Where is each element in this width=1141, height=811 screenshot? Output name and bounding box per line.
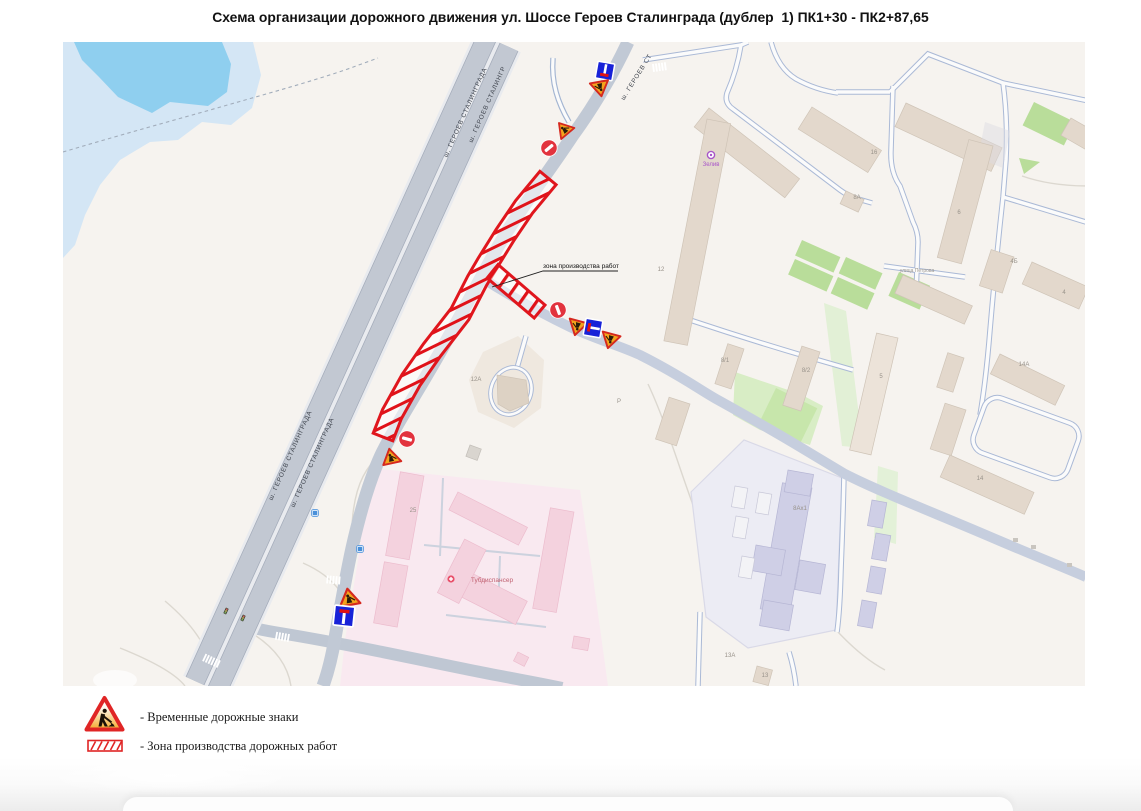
svg-text:улица Петрова: улица Петрова <box>900 268 935 274</box>
svg-text:8А: 8А <box>853 195 860 201</box>
svg-text:16: 16 <box>871 150 878 156</box>
svg-text:Р: Р <box>617 399 621 405</box>
svg-text:Тубдиспансер: Тубдиспансер <box>471 576 514 584</box>
svg-text:Зелив: Зелив <box>703 162 720 168</box>
svg-text:- Временные дорожные знаки: - Временные дорожные знаки <box>140 710 299 724</box>
svg-text:13А: 13А <box>725 653 736 659</box>
svg-text:4Б: 4Б <box>1010 259 1017 265</box>
svg-text:- Зона производства дорожных р: - Зона производства дорожных работ <box>140 739 338 753</box>
svg-text:25: 25 <box>410 508 417 514</box>
svg-text:зона производства работ: зона производства работ <box>543 262 619 270</box>
svg-text:14: 14 <box>977 476 984 482</box>
svg-text:12А: 12А <box>471 377 482 383</box>
svg-text:8Ах1: 8Ах1 <box>793 506 807 512</box>
svg-text:14А: 14А <box>1019 362 1030 368</box>
svg-text:13: 13 <box>762 673 769 679</box>
svg-text:12: 12 <box>658 267 665 273</box>
svg-text:8/1: 8/1 <box>721 358 730 364</box>
svg-text:8/2: 8/2 <box>802 368 811 374</box>
